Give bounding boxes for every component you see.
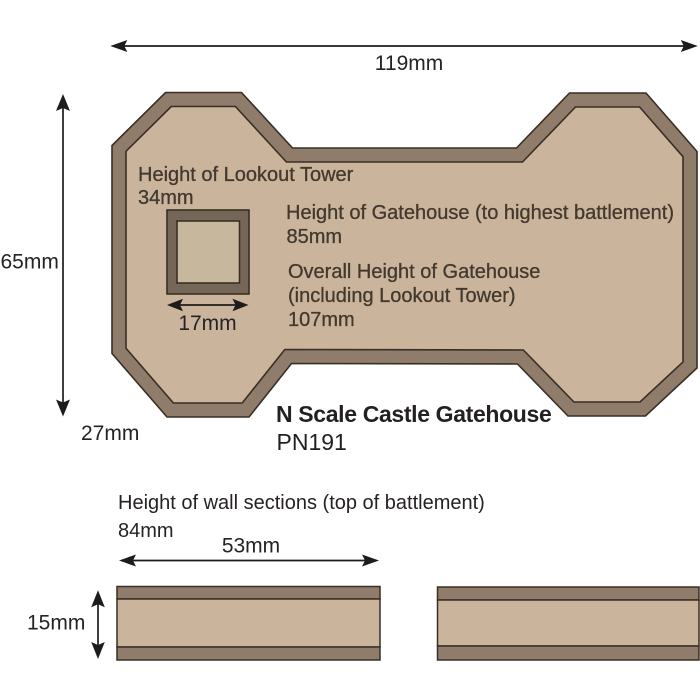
svg-text:53mm: 53mm — [222, 535, 280, 558]
svg-text:119mm: 119mm — [375, 52, 443, 75]
svg-text:(including Lookout Tower): (including Lookout Tower) — [288, 285, 516, 307]
svg-text:Height of wall sections (top o: Height of wall sections (top of battleme… — [118, 492, 485, 514]
svg-text:Height of Lookout Tower: Height of Lookout Tower — [138, 164, 354, 186]
svg-text:Overall Height of Gatehouse: Overall Height of Gatehouse — [288, 261, 540, 283]
svg-text:65mm: 65mm — [1, 251, 59, 274]
svg-text:Height of Gatehouse (to highes: Height of Gatehouse (to highest battleme… — [286, 202, 674, 224]
svg-text:85mm: 85mm — [287, 226, 343, 248]
svg-text:PN191: PN191 — [277, 429, 347, 455]
svg-text:34mm: 34mm — [138, 187, 194, 209]
svg-text:84mm: 84mm — [118, 520, 174, 542]
svg-text:27mm: 27mm — [81, 422, 139, 445]
svg-text:N Scale Castle Gatehouse: N Scale Castle Gatehouse — [276, 401, 551, 427]
svg-text:15mm: 15mm — [27, 612, 85, 635]
svg-text:17mm: 17mm — [178, 312, 236, 335]
svg-text:107mm: 107mm — [288, 309, 355, 331]
